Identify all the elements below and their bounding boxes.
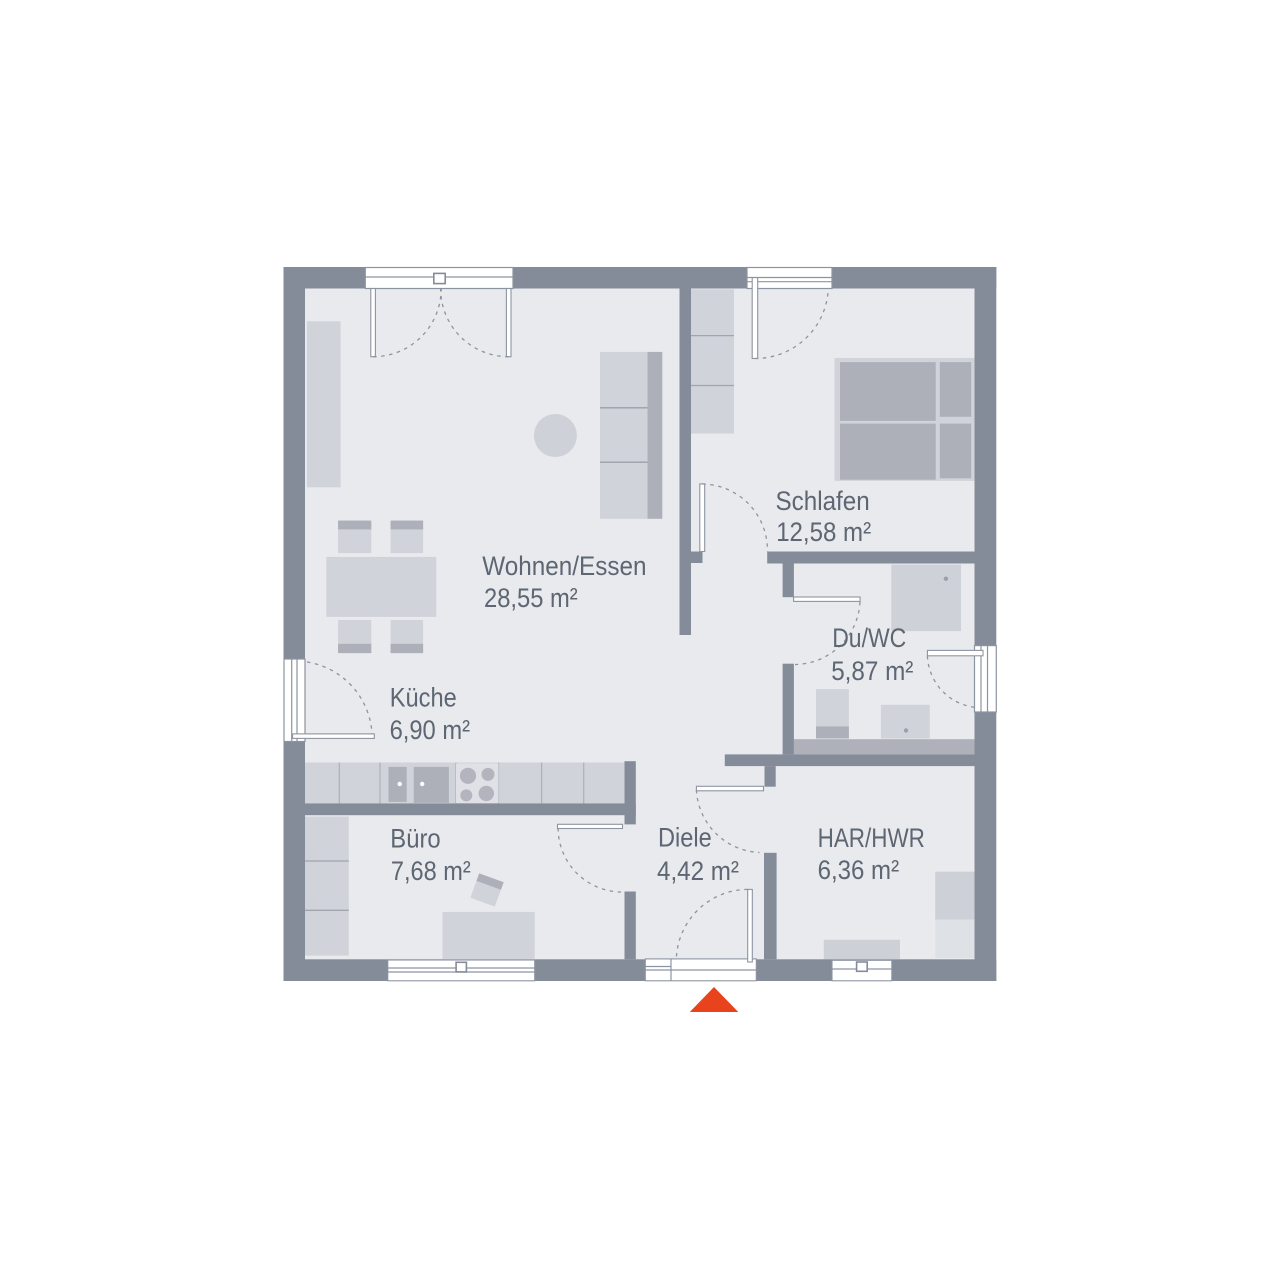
svg-text:28,55 m²: 28,55 m²: [484, 583, 578, 613]
svg-text:6,90 m²: 6,90 m²: [390, 715, 470, 745]
svg-text:5,87 m²: 5,87 m²: [831, 656, 913, 686]
svg-text:12,58 m²: 12,58 m²: [776, 517, 871, 547]
svg-text:Schlafen: Schlafen: [776, 486, 870, 516]
svg-text:6,36 m²: 6,36 m²: [818, 855, 900, 885]
svg-text:Küche: Küche: [390, 683, 457, 713]
svg-text:4,42 m²: 4,42 m²: [657, 856, 739, 886]
svg-text:Du/WC: Du/WC: [832, 623, 906, 653]
svg-text:Wohnen/Essen: Wohnen/Essen: [482, 551, 646, 581]
svg-text:HAR/HWR: HAR/HWR: [818, 823, 925, 853]
svg-text:Büro: Büro: [390, 824, 440, 854]
svg-text:7,68 m²: 7,68 m²: [391, 856, 471, 886]
svg-text:Diele: Diele: [658, 823, 712, 853]
